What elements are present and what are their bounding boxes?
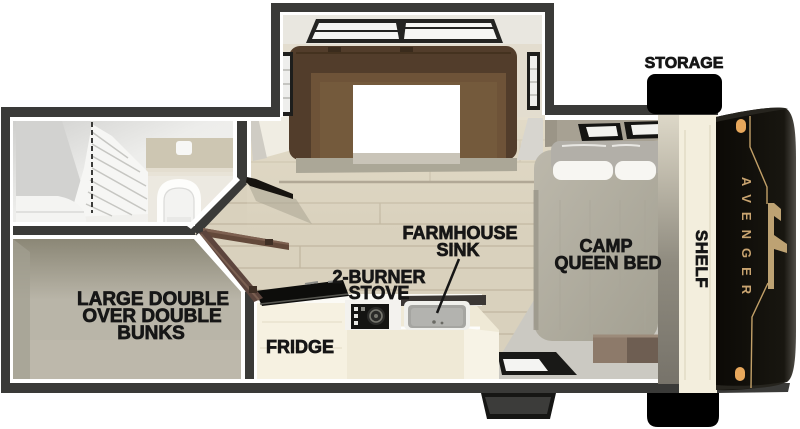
svg-text:AVENGER: AVENGER — [739, 177, 754, 303]
svg-text:STOVE: STOVE — [349, 283, 410, 303]
svg-text:QUEEN BED: QUEEN BED — [554, 253, 661, 273]
svg-text:STORAGE: STORAGE — [645, 55, 724, 72]
svg-text:BUNKS: BUNKS — [117, 323, 185, 344]
svg-text:SHELF: SHELF — [692, 230, 711, 288]
svg-text:SINK: SINK — [436, 240, 479, 260]
svg-text:FRIDGE: FRIDGE — [266, 337, 334, 357]
